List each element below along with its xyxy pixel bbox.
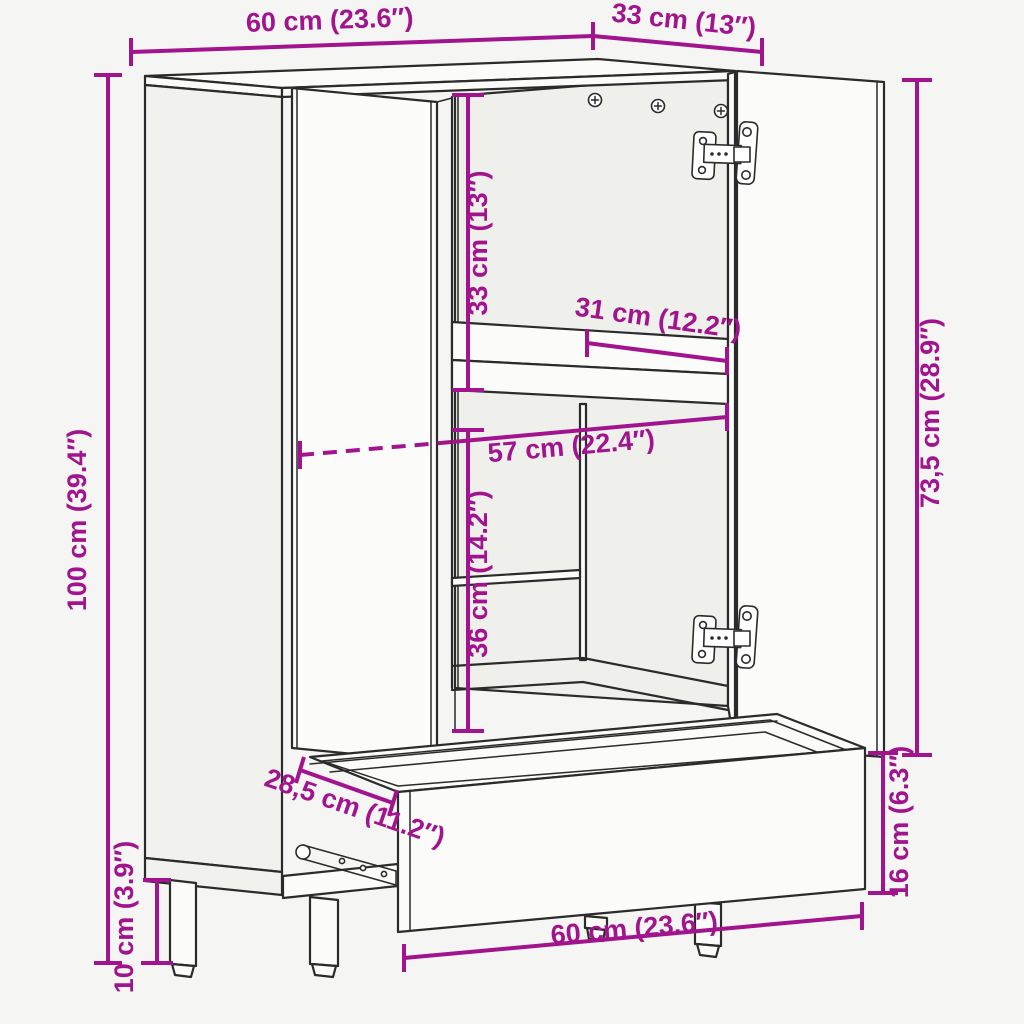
base-and-rail [283, 845, 398, 898]
dim-top-depth-label: 33 cm (13″) [610, 0, 757, 43]
right-door [737, 71, 884, 757]
dim-overall-height: 100 cm (39.4″) [62, 75, 122, 963]
leg-front-left [170, 880, 196, 977]
dim-door-height: 73,5 cm (28.9″) [902, 80, 945, 755]
cabinet-dimension-diagram: 60 cm (23.6″) 33 cm (13″) 100 cm (39.4″)… [0, 0, 1024, 1024]
dim-upper-compartment-label: 33 cm (13″) [463, 170, 493, 315]
dim-top-depth: 33 cm (13″) [593, 0, 762, 66]
cabinet-interior [452, 74, 728, 730]
dim-drawer-front-height-label: 16 cm (6.3″) [884, 746, 914, 899]
dim-top-width-label: 60 cm (23.6″) [245, 2, 413, 38]
dim-drawer-front-height: 16 cm (6.3″) [868, 746, 914, 899]
dim-leg-height-label: 10 cm (3.9″) [109, 841, 139, 994]
left-door [292, 88, 452, 762]
leg-mid-left [310, 897, 338, 977]
dim-door-height-label: 73,5 cm (28.9″) [915, 318, 945, 508]
dim-top-width: 60 cm (23.6″) [131, 2, 593, 66]
cabinet-drawing [145, 59, 884, 977]
diagram-canvas: 60 cm (23.6″) 33 cm (13″) 100 cm (39.4″)… [0, 0, 1024, 1024]
dim-overall-height-label: 100 cm (39.4″) [62, 429, 92, 612]
dim-lower-compartment-label: 36 cm (14.2″) [463, 490, 493, 658]
left-side-panel [145, 85, 282, 895]
